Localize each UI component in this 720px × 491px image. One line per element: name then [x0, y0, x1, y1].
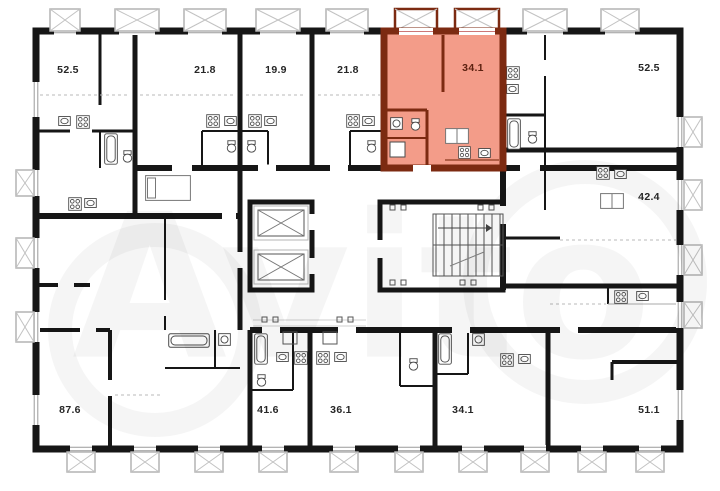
toilet-icon [247, 141, 255, 152]
bathtub-icon [105, 134, 118, 164]
stove-icon [347, 115, 360, 128]
elevator-icon [254, 206, 308, 284]
balcony-icon [259, 452, 287, 472]
wardrobe-icon [601, 194, 624, 209]
balcony-icon [601, 9, 639, 31]
stove-icon [597, 167, 610, 180]
sink-icon [265, 117, 277, 126]
interior-walls [36, 31, 680, 449]
sink-icon [507, 85, 519, 94]
stove-icon [77, 116, 90, 129]
bathtub-icon [439, 334, 452, 364]
bathtub-icon [255, 334, 268, 364]
sink-icon [277, 353, 289, 362]
balcony-icon [395, 452, 423, 472]
balcony-icon [684, 180, 702, 210]
balcony-icon [50, 9, 80, 31]
washer-icon [219, 334, 231, 346]
stove-icon [507, 67, 520, 80]
balcony-icon [115, 9, 159, 31]
sink-icon [519, 355, 531, 364]
corridor-details [253, 304, 680, 344]
balcony-icon [256, 9, 300, 31]
sink-icon [637, 292, 649, 301]
stove-icon [207, 115, 220, 128]
toilet-icon [409, 359, 417, 370]
balcony-icon [578, 452, 606, 472]
balcony-icon [684, 117, 702, 147]
balcony-icon [67, 452, 95, 472]
balcony-icon [16, 238, 34, 268]
balcony-icon [195, 452, 223, 472]
balcony-icon [459, 452, 487, 472]
stove-icon [249, 115, 262, 128]
toilet-icon [528, 132, 536, 143]
stove-icon [501, 354, 514, 367]
staircase-icon [390, 205, 503, 285]
toilet-icon [123, 151, 131, 162]
washer-icon [473, 334, 485, 346]
sink-icon [615, 170, 627, 179]
balcony-icon [684, 302, 702, 328]
balcony-icon [521, 452, 549, 472]
floor-plan-drawing: Avito [0, 0, 720, 491]
balcony-icon [16, 170, 34, 196]
sink-icon [59, 117, 71, 126]
sink-icon [363, 117, 375, 126]
stove-icon [69, 198, 82, 211]
stove-icon [295, 352, 308, 365]
sink-icon [335, 353, 347, 362]
balcony-icon [326, 9, 368, 31]
sink-icon [225, 117, 237, 126]
balcony-icon [636, 452, 664, 472]
balcony-icon [330, 452, 358, 472]
balcony-icon [131, 452, 159, 472]
stove-icon [317, 352, 330, 365]
balcony-icon [184, 9, 226, 31]
toilet-icon [257, 375, 265, 386]
bed-icon [146, 176, 191, 201]
balconies [16, 9, 702, 472]
stove-icon [615, 291, 628, 304]
toilet-icon [227, 141, 235, 152]
balcony-icon [523, 9, 567, 31]
bathtub-icon [169, 334, 210, 348]
fixtures [59, 67, 649, 386]
toilet-icon [367, 141, 375, 152]
bathtub-icon [508, 119, 521, 149]
floor-plan: Avito 52.521.819.921.834.152.542.487.641… [0, 0, 720, 491]
balcony-icon [684, 245, 702, 275]
highlighted-unit-34-1 [384, 28, 503, 172]
sink-icon [85, 199, 97, 208]
balcony-icon [16, 312, 34, 342]
